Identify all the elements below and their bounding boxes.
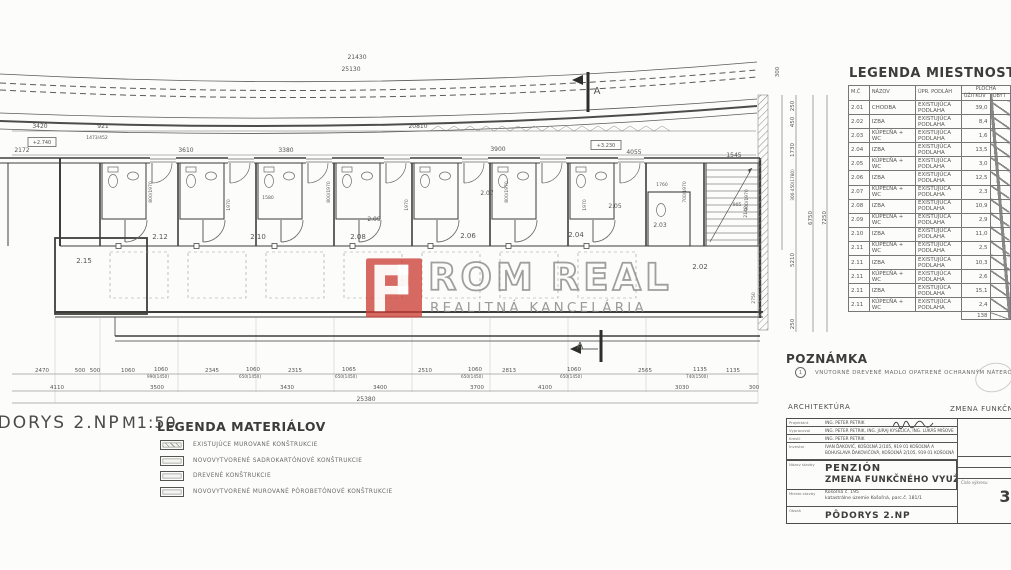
plan-label: 1060 [468, 367, 482, 373]
plan-label: 2140 [743, 206, 749, 218]
plan-label: +2.740 [33, 140, 52, 146]
pencil-scribble [972, 359, 1011, 396]
plan-label: 7250 [822, 211, 828, 225]
drawing-number-box: Číslo výkresu 3 [958, 479, 1011, 521]
roof-hatch-band [430, 126, 670, 131]
plan-label: 2.08 [350, 233, 366, 241]
plan-label: 2470 [35, 368, 49, 374]
plan-label: 921 [97, 123, 109, 130]
plan-label: 4055 [626, 149, 641, 156]
material-item: DREVENÉ KONŠTRUKCIE [160, 471, 393, 481]
project-name: PENZIÓN [825, 463, 957, 475]
empty-box [958, 419, 1011, 457]
order-box: Zákazka č. [958, 468, 1011, 479]
material-label: DREVENÉ KONŠTRUKCIE [193, 473, 271, 479]
room-row: 2.11KÚPEĽŇA + WCEXISTUJÚCA PODLAHA2,6 [849, 270, 1011, 284]
plan-label: 700/1970 [682, 181, 688, 203]
material-swatch [160, 487, 184, 497]
plan-label: 3380 [278, 147, 293, 154]
material-item: NOVOVYTVORENÉ MUROVANÉ PÓROBETÓNOVÉ KONŠ… [160, 487, 393, 497]
plan-label: 2345 [205, 368, 219, 374]
plan-label: 3430 [280, 385, 294, 391]
plan-label: 300 [775, 66, 781, 77]
room-row: 2.01CHODBAEXISTUJÚCA PODLAHA39,0 [849, 101, 1011, 115]
material-swatch [160, 456, 184, 466]
plan-label: 2.09 [367, 216, 381, 223]
room-row: 2.11KÚPEĽŇA + WCEXISTUJÚCA PODLAHA2,4 [849, 298, 1011, 312]
col-header-mc: M.Č [849, 86, 870, 101]
material-label: EXISTUJÚCE MUROVANÉ KONŠTRUKCIE [193, 442, 318, 448]
plan-label: A [594, 86, 601, 97]
plan-label: 2.15 [76, 257, 92, 265]
plan-label: 1473/452 [86, 135, 108, 141]
project-subname: ZMENA FUNKČNÉHO VYUŽITIA STAVBY [825, 475, 957, 485]
room-row: 2.04IZBAEXISTUJÚCA PODLAHA13,5 [849, 143, 1011, 157]
plan-label: 2813 [502, 368, 516, 374]
material-label: NOVOVYTVORENÉ MUROVANÉ PÓROBETÓNOVÉ KONŠ… [193, 489, 393, 495]
plan-label: 650(1450) [461, 374, 483, 379]
plan-label: 300-450(1780) [790, 169, 795, 201]
total-row: 138 [849, 312, 1011, 320]
room-row: 2.11IZBAEXISTUJÚCA PODLAHA15,1 [849, 284, 1011, 298]
note-marker-icon: 1 [795, 367, 806, 378]
plan-label: 1970 [226, 199, 232, 211]
plan-label: 1065 [342, 367, 356, 373]
room-row: 2.02IZBAEXISTUJÚCA PODLAHA8,4 [849, 115, 1011, 129]
plan-label: 3030 [675, 385, 689, 391]
hatched-wall [758, 95, 768, 330]
drawing-content: PÔDORYS 2.NP [825, 507, 910, 523]
plan-label: 2.07 [480, 190, 494, 197]
section-marker-bottom [570, 330, 601, 362]
plan-label: 3900 [490, 146, 505, 153]
investor-row: Investor IVAN ĎAKOVIČ, KOŠOĽNÁ 2/105, 91… [787, 443, 957, 460]
plan-label: 3610 [178, 147, 193, 154]
plan-label: 740(1500) [686, 374, 708, 379]
plan-label: 1135 [693, 367, 707, 373]
plan-label: 2.05 [608, 203, 622, 210]
plan-label: 5210 [790, 253, 796, 267]
project-label: ZMENA FUNKČNÉHO V [950, 405, 1011, 413]
plan-label: 6750 [808, 211, 814, 225]
toilet-icon [657, 204, 666, 217]
title-block: Projektant ING. PETER PETRIK Vypracoval … [786, 418, 1011, 524]
plan-label: 800/1970 [326, 181, 332, 203]
room-215-outline [55, 238, 147, 314]
col-header-uzitkov: ÚŽITKOV [961, 93, 990, 101]
plan-label: 25130 [341, 66, 360, 73]
plan-label: 2750 [751, 292, 757, 304]
plan-label: A [577, 341, 584, 352]
room-row: 2.06IZBAEXISTUJÚCA PODLAHA12,5 [849, 171, 1011, 185]
plan-label: 500 [90, 368, 101, 374]
room-row: 2.11KÚPEĽŇA + WCEXISTUJÚCA PODLAHA2,5 [849, 241, 1011, 255]
plan-label: 2.03 [653, 222, 667, 229]
title-block-right: Dátum09/20 Zákazka č. Číslo výkresu 3 [957, 419, 1011, 523]
building-walls [0, 158, 763, 341]
total-area: 138 [961, 312, 990, 320]
plan-label: 1060 [154, 367, 168, 373]
discipline-label: ARCHITEKTÚRA [788, 403, 851, 411]
rooms-legend-title: LEGENDA MIESTNOSTÍ [849, 66, 1011, 81]
plan-label: 2.12 [152, 233, 168, 241]
material-label: NOVOVYTVORENÉ SADROKARTÓNOVÉ KONŠTRUKCIE [193, 458, 362, 464]
plan-label: 1060 [567, 367, 581, 373]
note-title: POZNÁMKA [786, 352, 868, 366]
room-row: 2.07KÚPEĽŇA + WCEXISTUJÚCA PODLAHA2,3 [849, 185, 1011, 199]
room-row: 2.08IZBAEXISTUJÚCA PODLAHA10,9 [849, 199, 1011, 213]
plan-label: 1580 [262, 195, 274, 201]
material-item: EXISTUJÚCE MUROVANÉ KONŠTRUKCIE [160, 440, 393, 450]
content-row: Obsah PÔDORYS 2.NP [787, 507, 957, 523]
material-item: NOVOVYTVORENÉ SADROKARTÓNOVÉ KONŠTRUKCIE [160, 456, 393, 466]
col-header-plocha: PLOCHA [961, 86, 1010, 94]
site-row: Miesto stavby Košoľná č. 195katastrálne … [787, 490, 957, 507]
col-header-nazov: NÁZOV [869, 86, 915, 101]
materials-legend-list: EXISTUJÚCE MUROVANÉ KONŠTRUKCIENOVOVYTVO… [160, 440, 393, 502]
vypracoval-row: Vypracoval ING. PETER PETRIK, ING. JURAJ… [787, 427, 957, 435]
room-row: 2.11IZBAEXISTUJÚCA PODLAHA10,3 [849, 256, 1011, 270]
project-name-row: Názov stavby PENZIÓN ZMENA FUNKČNÉHO VYU… [787, 460, 957, 490]
plan-label: 3500 [150, 385, 164, 391]
plan-label: 1060 [121, 368, 135, 374]
materials-legend-title: LEGENDA MATERIÁLOV [157, 419, 326, 434]
material-swatch [160, 440, 184, 450]
plan-label: 250 [790, 100, 796, 111]
floor-plan-drawing: 21430251302081034209211473/452+2.7402172… [0, 0, 845, 420]
dimension-lines [12, 95, 827, 403]
plan-label: 1970 [582, 199, 588, 211]
rooms-legend-table: M.Č NÁZOV ÚPR. PODLÁH PLOCHA ÚŽITKOV OBY… [848, 85, 1011, 320]
plan-label: 905 [733, 202, 742, 208]
kreslil-row: Kreslil ING. PETER PETRIK [787, 435, 957, 443]
plan-label: 3700 [470, 385, 484, 391]
plan-label: 2315 [288, 368, 302, 374]
plan-label: 1060 [246, 367, 260, 373]
plan-label: 2.04 [568, 231, 584, 239]
date-box: Dátum09/20 [958, 457, 1011, 468]
plan-label: 450 [790, 116, 796, 127]
scanned-floorplan-page: 21430251302081034209211473/452+2.7402172… [0, 0, 1011, 570]
plan-label: 300 [749, 385, 760, 391]
material-swatch [160, 471, 184, 481]
room-row: 2.05KÚPEĽŇA + WCEXISTUJÚCA PODLAHA3,0 [849, 157, 1011, 171]
plan-label: 20810 [408, 123, 427, 130]
plan-label: 2.10 [250, 233, 266, 241]
col-header-upr: ÚPR. PODLÁH [916, 86, 962, 101]
plan-label: 800/1970 [148, 181, 154, 203]
plan-label: 500 [75, 368, 86, 374]
plan-label: 2.06 [460, 232, 476, 240]
room-row: 2.09KÚPEĽŇA + WCEXISTUJÚCA PODLAHA2,9 [849, 213, 1011, 227]
plan-title: PÔDORYS 2.NP [0, 413, 121, 433]
plan-label: 1545 [726, 152, 741, 159]
roof-lines [0, 62, 757, 133]
plan-label: 1760 [656, 182, 668, 188]
projektant-row: Projektant ING. PETER PETRIK [787, 419, 957, 427]
plan-label: 1730 [790, 143, 796, 157]
plan-label: 3400 [373, 385, 387, 391]
plan-label: +3.230 [597, 143, 616, 149]
plan-label: 21430 [347, 54, 366, 61]
section-marker-top [572, 72, 588, 112]
plan-label: 25380 [356, 396, 375, 403]
plan-label: 250 [790, 318, 796, 329]
drawing-number: 3 [961, 487, 1011, 506]
plan-label: 990(1450) [147, 374, 169, 379]
plan-label: 4110 [50, 385, 64, 391]
plan-label: 800/1970 [504, 181, 510, 203]
plan-label: 650(1450) [335, 374, 357, 379]
plan-label: 2510 [418, 368, 432, 374]
plan-label: 2172 [14, 147, 29, 154]
plan-label: 4100 [538, 385, 552, 391]
room-row: 2.10IZBAEXISTUJÚCA PODLAHA11,0 [849, 227, 1011, 241]
plan-label: 1135 [726, 368, 740, 374]
plan-label: 650(1450) [239, 374, 261, 379]
plan-label: 650(1450) [560, 374, 582, 379]
plan-label: 2565 [638, 368, 652, 374]
col-header-obyt: OBYT [990, 93, 1010, 101]
plan-label: 2.02 [692, 263, 708, 271]
room-row: 2.03KÚPEĽŇA + WCEXISTUJÚCA PODLAHA1,6 [849, 129, 1011, 143]
plan-label: 3420 [32, 123, 47, 130]
plan-label: 1970 [404, 199, 410, 211]
